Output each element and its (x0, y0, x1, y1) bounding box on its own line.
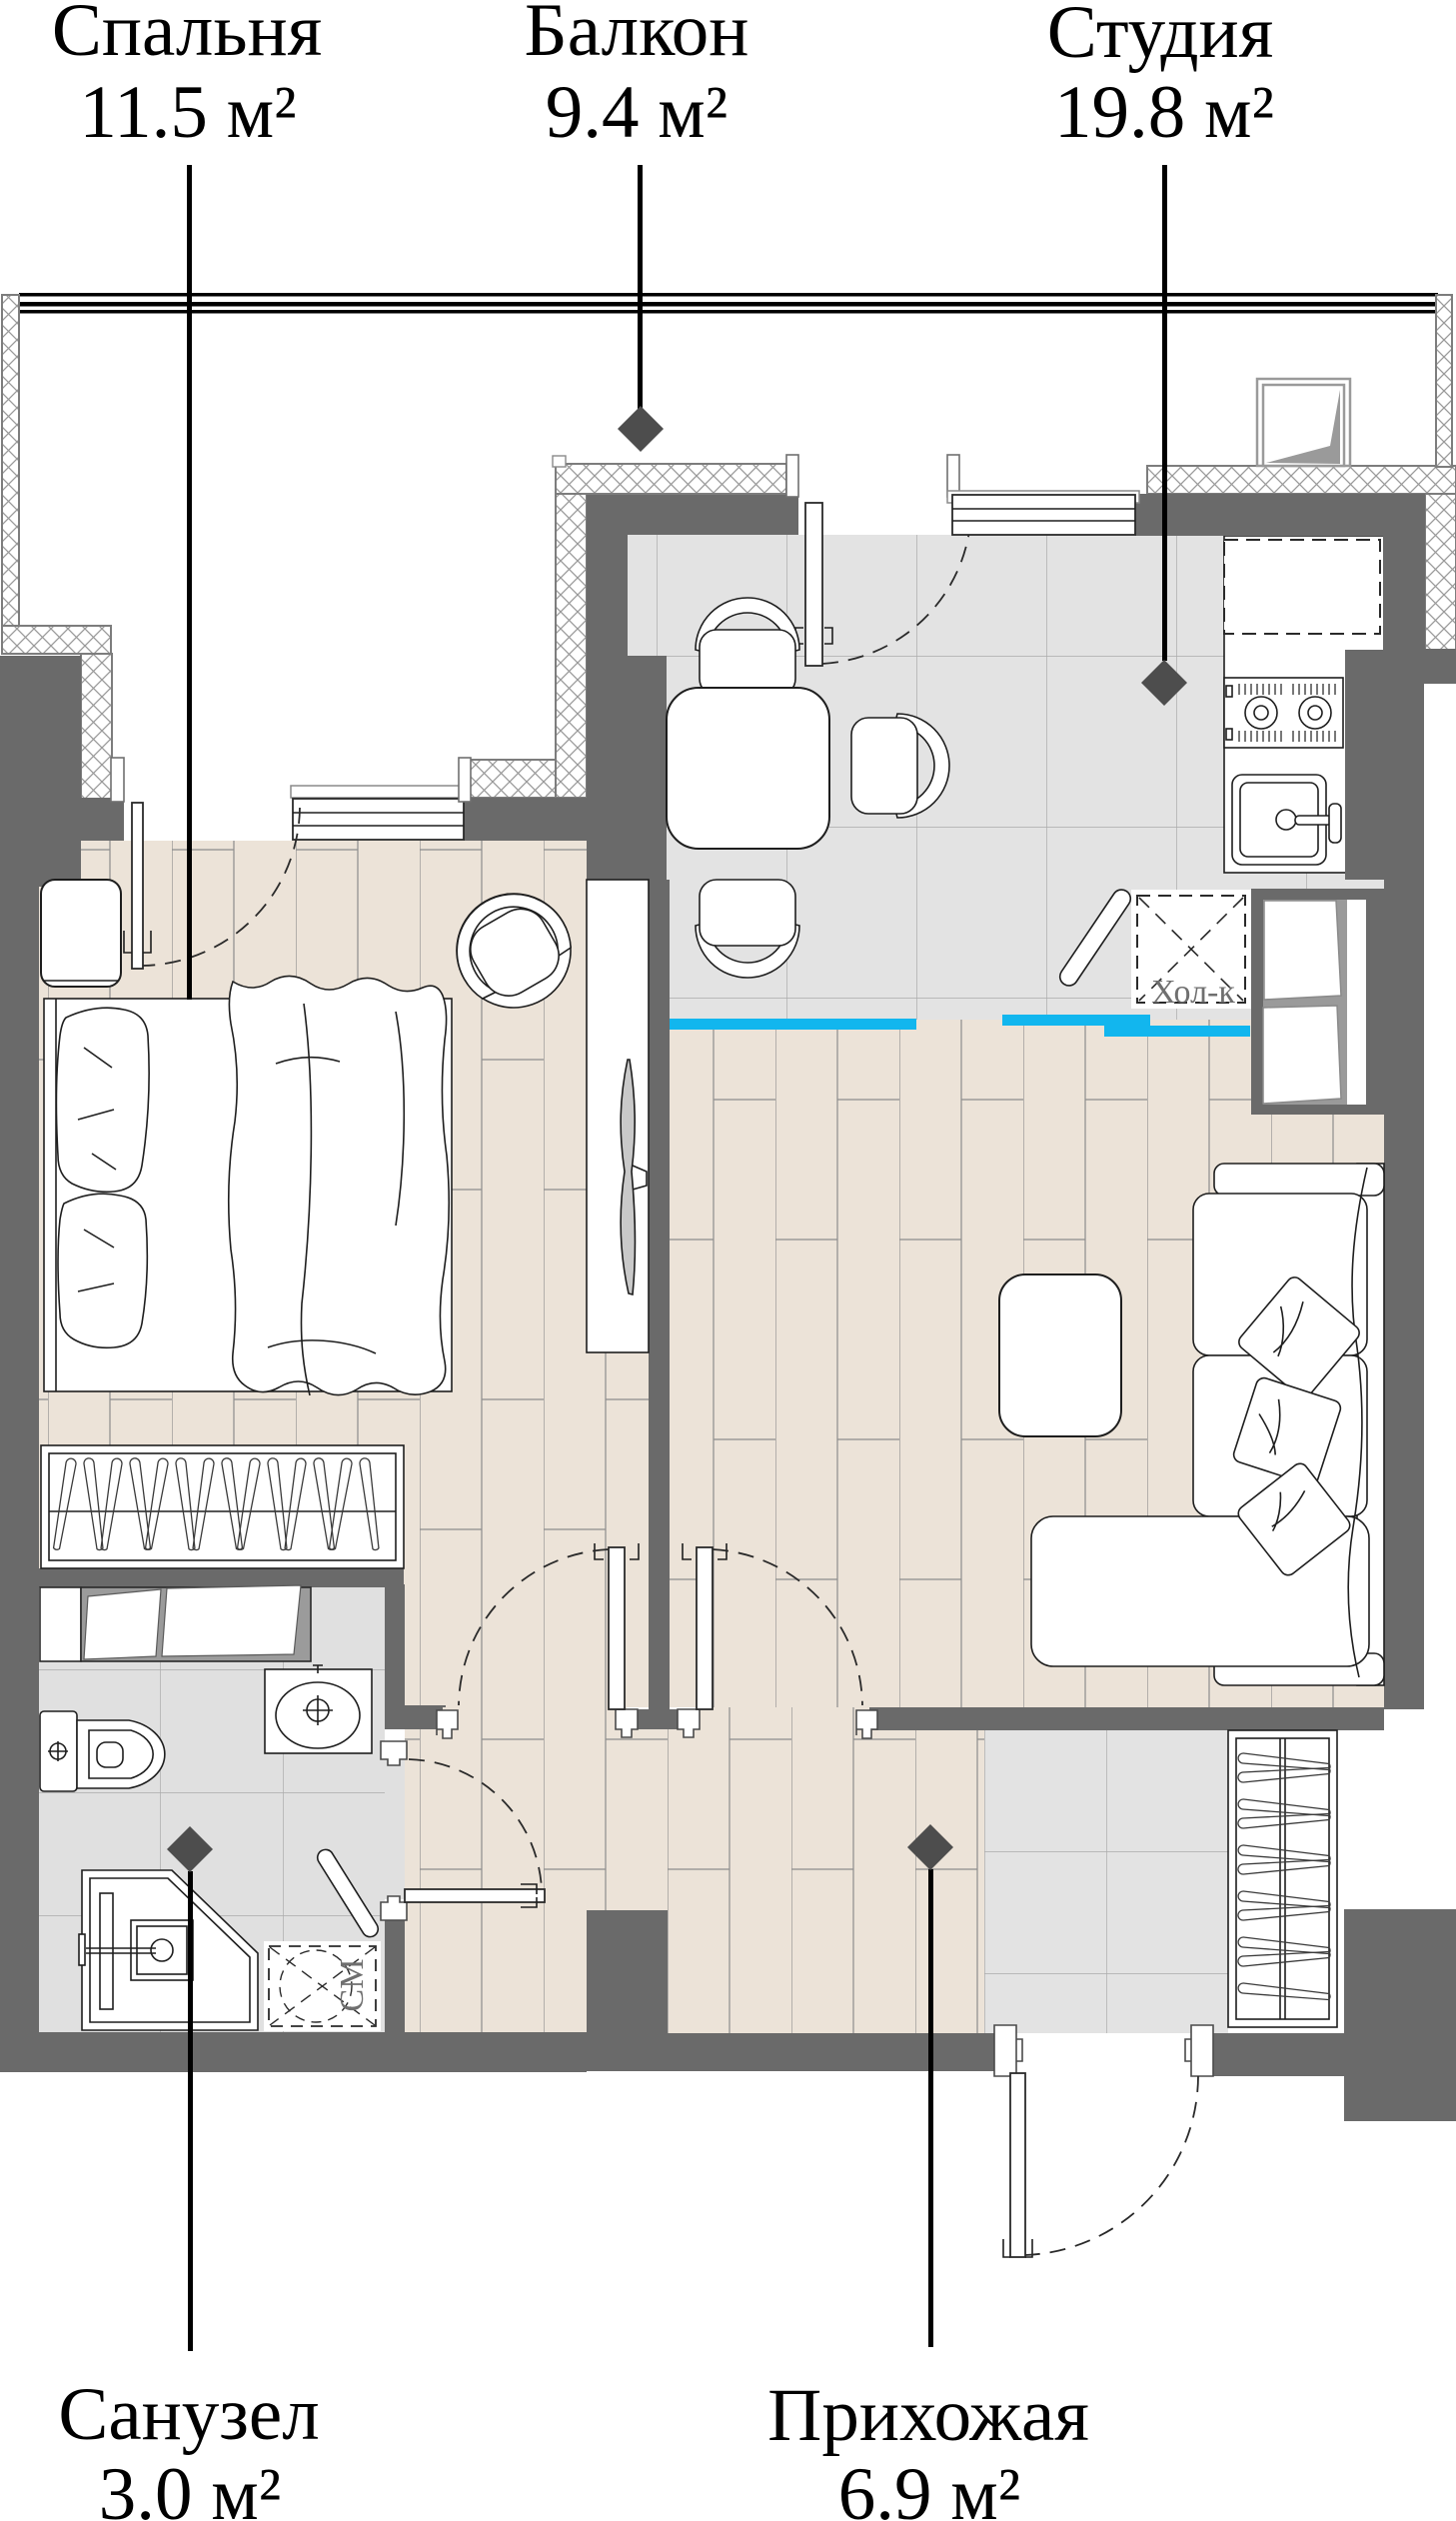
svg-text:Хол-к: Хол-к (1151, 974, 1235, 1011)
svg-text:9.4 м²: 9.4 м² (546, 71, 728, 154)
svg-text:Прихожая: Прихожая (767, 2374, 1089, 2457)
svg-text:СМ: СМ (334, 1959, 371, 2012)
svg-text:Балкон: Балкон (525, 0, 749, 72)
svg-text:3.0 м²: 3.0 м² (99, 2453, 281, 2521)
svg-text:Студия: Студия (1047, 0, 1273, 74)
svg-text:19.8 м²: 19.8 м² (1054, 71, 1274, 154)
svg-text:Санузел: Санузел (58, 2373, 319, 2456)
svg-text:Спальня: Спальня (52, 0, 322, 72)
svg-text:11.5 м²: 11.5 м² (79, 71, 296, 154)
svg-text:6.9 м²: 6.9 м² (838, 2453, 1020, 2521)
